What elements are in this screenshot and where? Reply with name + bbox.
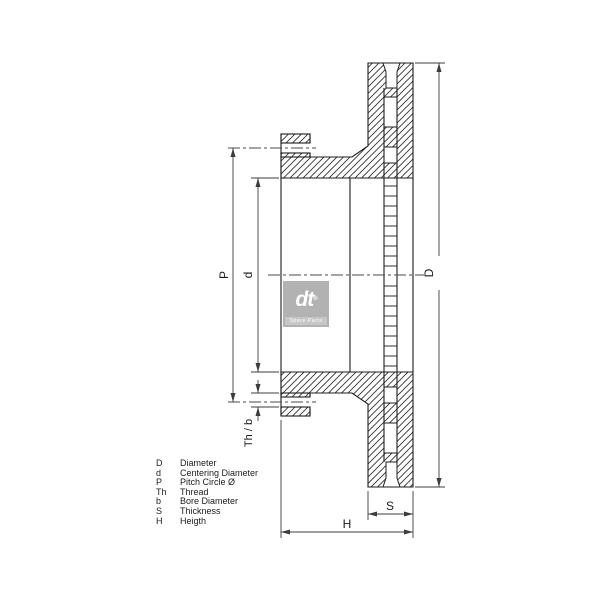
dt-logo-subtitle-strip: Spare Parts	[285, 317, 327, 325]
dt-logo-text: dt	[295, 288, 313, 311]
bottom-wear-groove	[383, 462, 400, 487]
dimension-label-thread-bore: Th / b	[243, 419, 255, 447]
bottom-bolt-boss	[281, 407, 310, 416]
dimension-label-height: H	[343, 517, 352, 531]
top-wear-groove	[383, 63, 400, 88]
dimension-label-outer-diameter: D	[422, 268, 436, 277]
brake-disc-technical-drawing: P d D Th / b S H dt® Spare Parts DDiamet…	[0, 0, 600, 600]
legend-description: Heigth	[180, 516, 206, 526]
legend-row-height: HHeigth	[156, 517, 258, 527]
dimension-label-pitch-circle: P	[217, 271, 231, 279]
dt-logo-mark: dt®	[283, 281, 329, 317]
legend-description: Centering Diameter	[180, 468, 258, 478]
legend-description: Pitch Circle Ø	[180, 477, 235, 487]
top-bolt-boss-lower	[281, 153, 310, 157]
dimension-label-centering-diameter: d	[241, 272, 255, 279]
top-bolt-boss	[281, 134, 310, 143]
legend-description: Thickness	[180, 506, 221, 516]
vent-vane-rungs	[384, 186, 397, 366]
dt-spare-parts-logo: dt® Spare Parts	[283, 281, 329, 327]
legend-description: Bore Diameter	[180, 496, 238, 506]
registered-trademark-symbol: ®	[313, 296, 316, 302]
legend-description: Thread	[180, 487, 209, 497]
legend-symbol: H	[156, 517, 180, 527]
dimension-label-thickness: S	[386, 499, 394, 513]
dt-logo-subtitle: Spare Parts	[289, 318, 322, 324]
legend-description: Diameter	[180, 458, 217, 468]
bottom-bolt-boss-upper	[281, 393, 310, 397]
legend: DDiameter dCentering Diameter PPitch Cir…	[156, 459, 258, 526]
legend-row-thickness: SThickness	[156, 507, 258, 517]
